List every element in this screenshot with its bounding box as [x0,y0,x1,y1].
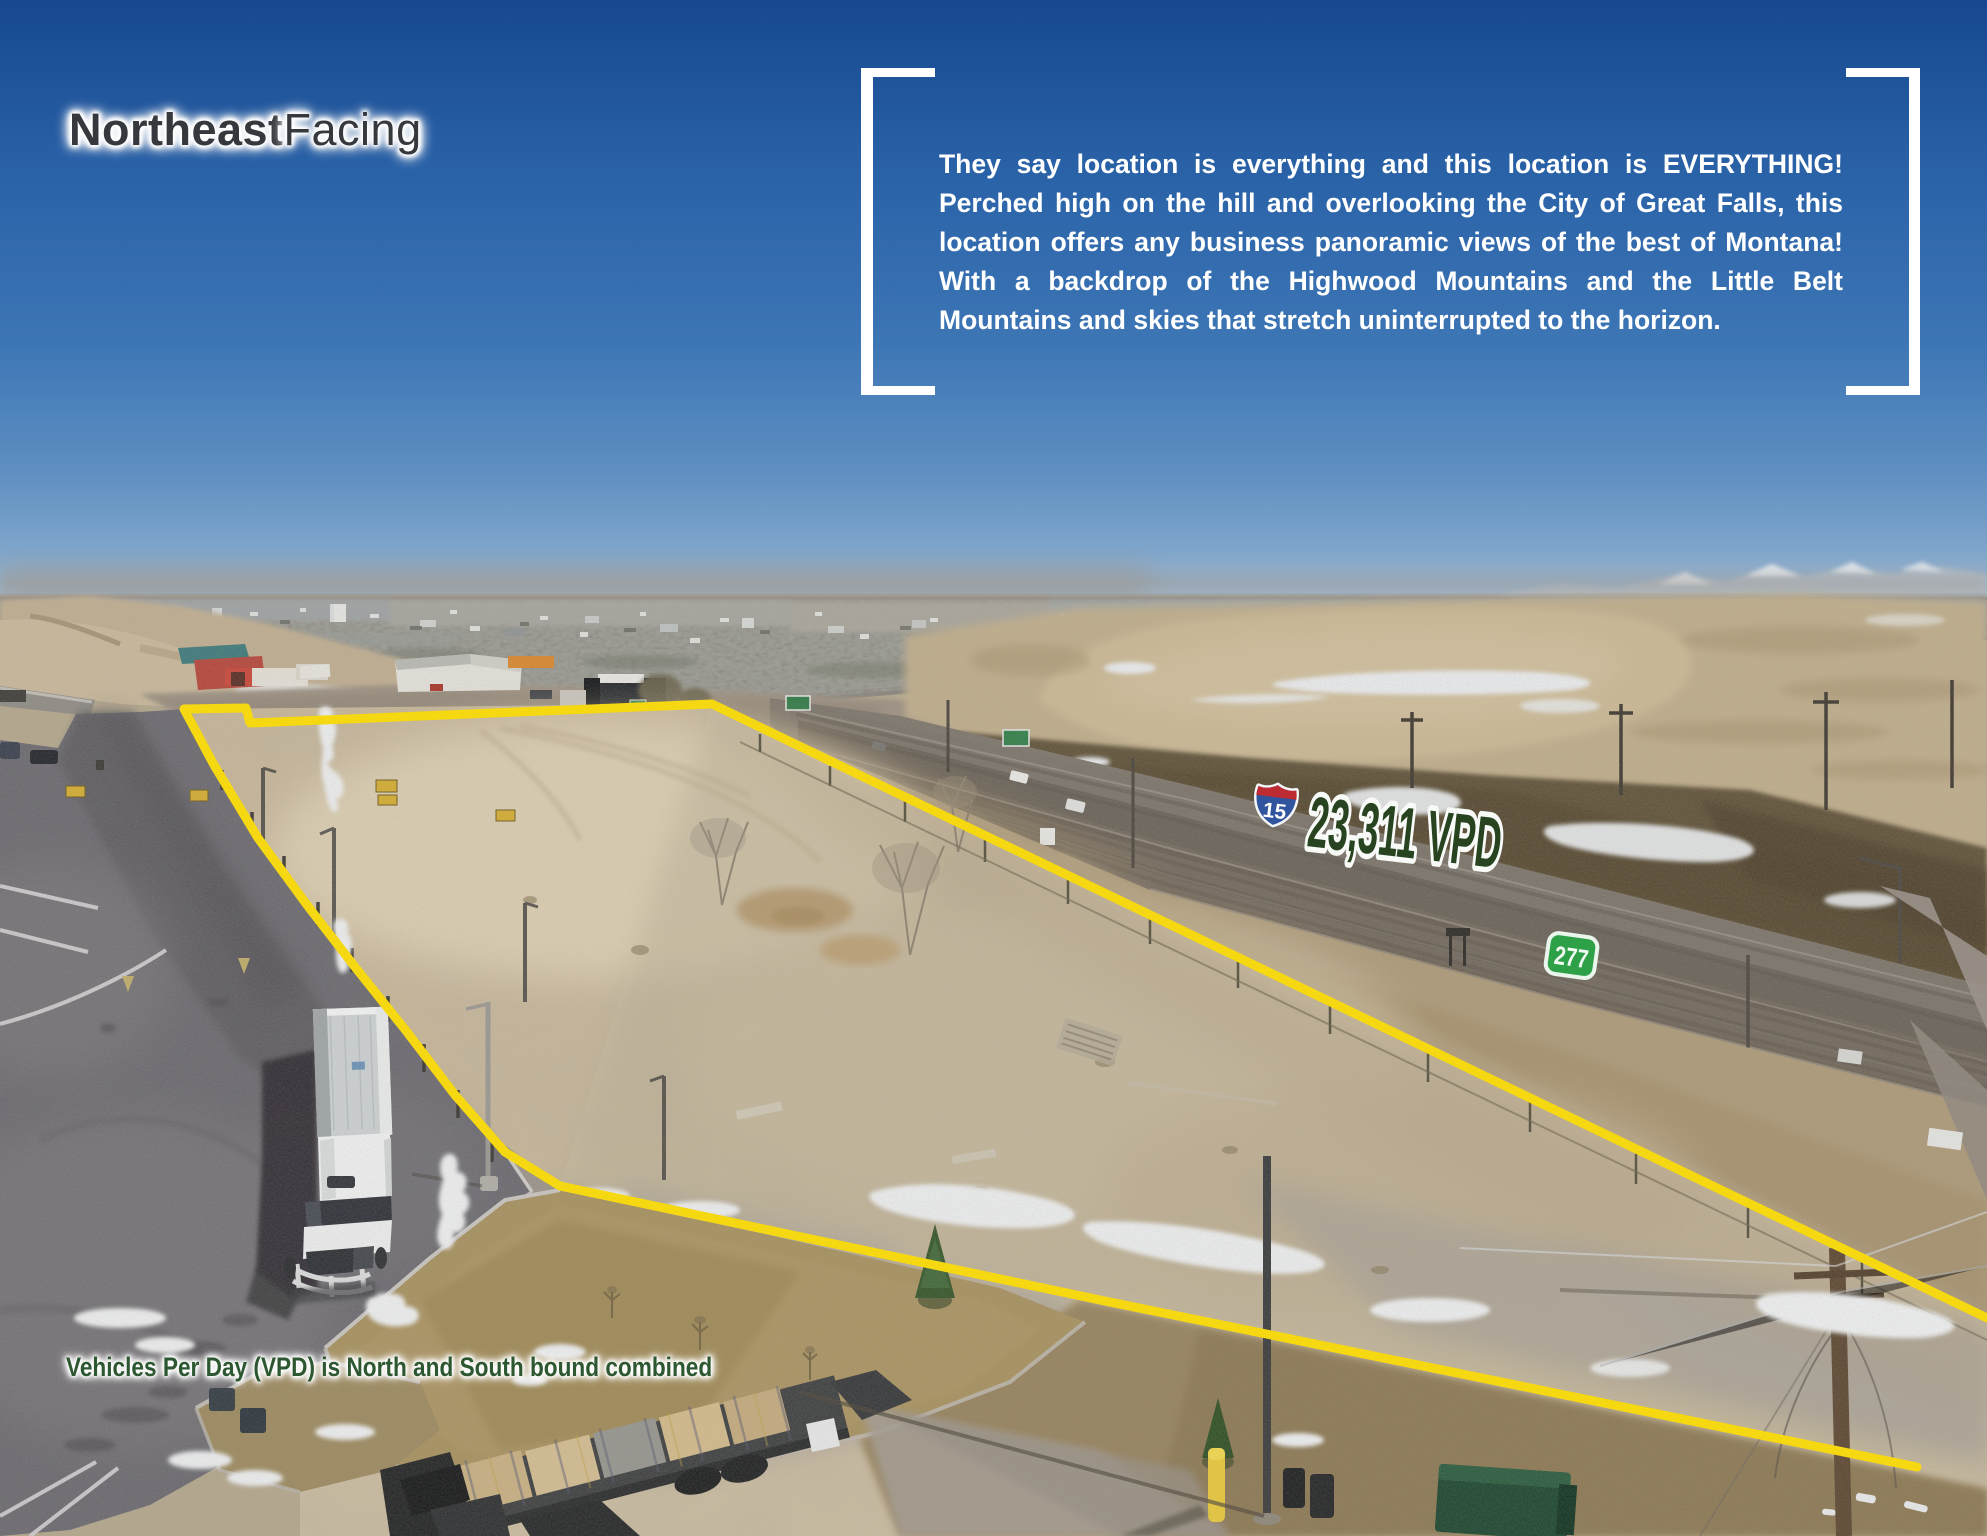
svg-text:277: 277 [1552,940,1590,974]
svg-text:15: 15 [1262,799,1288,825]
